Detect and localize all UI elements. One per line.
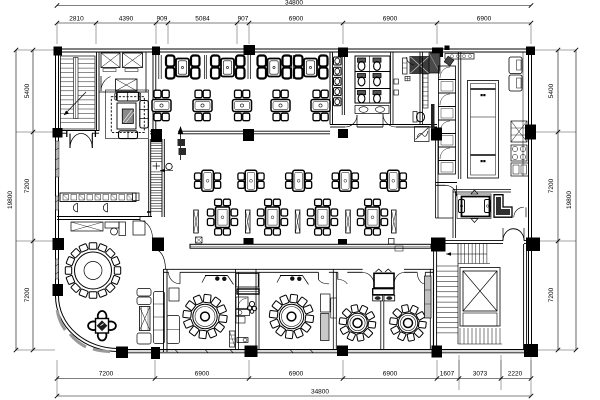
svg-text:19800: 19800 [566,191,573,209]
svg-text:909: 909 [157,16,168,23]
svg-text:5084: 5084 [195,16,210,23]
svg-text:19800: 19800 [7,191,14,209]
svg-text:6900: 6900 [195,371,210,378]
svg-text:7200: 7200 [99,371,114,378]
svg-text:34800: 34800 [285,0,303,7]
svg-text:7200: 7200 [548,178,555,193]
svg-text:7200: 7200 [24,178,31,193]
svg-text:6900: 6900 [383,16,398,23]
svg-text:6900: 6900 [383,371,398,378]
svg-text:6900: 6900 [289,371,304,378]
svg-text:7200: 7200 [548,287,555,302]
svg-text:6900: 6900 [477,16,492,23]
svg-text:34800: 34800 [311,389,329,396]
svg-text:5400: 5400 [548,83,555,98]
svg-text:■■: ■■ [480,159,486,164]
svg-text:907: 907 [238,16,249,23]
svg-text:4390: 4390 [119,16,134,23]
svg-text:1607: 1607 [440,371,455,378]
svg-text:2810: 2810 [69,16,84,23]
svg-text:2220: 2220 [508,371,523,378]
svg-text:3073: 3073 [473,371,488,378]
svg-text:7200: 7200 [24,287,31,302]
svg-text:6900: 6900 [289,16,304,23]
svg-text:■■: ■■ [480,93,486,98]
svg-text:5400: 5400 [24,83,31,98]
